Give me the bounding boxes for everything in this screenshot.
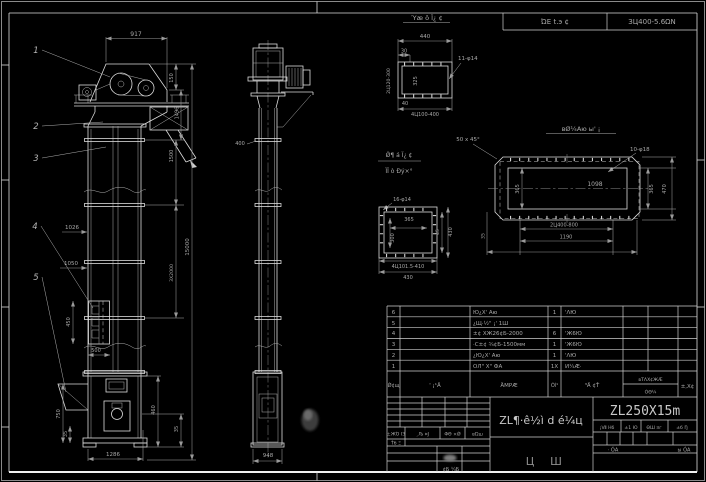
header-model: ЗЦ400-5.6ΩΝ [628,18,676,26]
info-label: ΘШ ¤г [646,425,662,431]
bom-header-name: ÄΜΡÆ [500,382,517,389]
bom-name: ·С±¢ ¾¢Б-1500мм [473,342,525,348]
bom-name: Ю¿Х' Аю [473,310,498,316]
dim-45: 45 [435,229,441,235]
bom-row: 5 ¿Щ·½" ¡' 1Ш [392,320,509,327]
idler-pulley [138,80,154,96]
dim-40: 40 [402,101,408,107]
bom-header-std: вΤΛХ¢ЖÆ [638,377,663,383]
balloon-4: 4 [32,222,37,232]
casing-front [84,126,146,438]
bom-row: 1 ОЛ" Х" ФА 1Х И¼Æ· [392,364,582,370]
support-bracket [283,95,311,127]
balloon-2: 2 [33,122,38,132]
bom-material: И¼Æ· [565,364,582,370]
side-elevation-view: 400 948 [235,40,313,464]
bom-row: 6 Ю¿Х' Аю 1 'ΛЮ [392,310,577,316]
bom-header-std2: ÓΘ¼ [645,389,657,396]
bom-name: ¿Ю¿Х' Аю [473,353,501,359]
bom-qty: 1 [553,342,557,348]
bom-qty: 1Х [551,364,558,370]
front-elevation-view: 1 2 3 4 5 917 150 1496 1500 3Х2000 [32,31,197,461]
bom-material: 'Ж6Ю [565,331,582,337]
holes-note-16: 16-φ14 [393,197,411,203]
bom-header-note: ±,Х¢ [681,384,695,390]
dim-2x400: 2Ц400-800 [550,223,578,229]
approval-label: ¸Љ ¤Ј [416,432,429,438]
flow-arrow [190,160,197,168]
cad-drawing-canvas: ΏΕ t.э ¢ ЗЦ400-5.6ΩΝ [0,0,706,482]
dim-430-bottom: 430 [403,275,413,281]
drawing-number-cell: ZL250X15m ¡Ⅶ Нб ±1 Ю ΘШ ¤г ±б Ŋ · ÓА ы Ó… [593,404,697,454]
signature-smudge [444,455,457,462]
drive-motor-side [286,66,303,88]
top-header-strip: ΏΕ t.э ¢ ЗЦ400-5.6ΩΝ [503,13,697,30]
chamfer-note: 50 x 45° [456,137,480,143]
holes-note-11: 11-φ14 [458,56,478,62]
approval-label: ±ЖΌ ΙЗ [387,431,405,438]
detail-base-plate: Ǿ¶ á Ï¿ ¢ ÏÏ ò Ðý×° 16-φ14 365 300 45 43… [378,152,454,281]
date-label: ¢Б ¼Б [443,467,460,473]
bom-header-material: ³Ä ¢Ť [585,381,600,389]
bom-header-no: Ǿ¢щ [388,382,400,389]
bom-qty: 1 [553,310,557,316]
dim-325: 325 [413,76,419,86]
title-block: ±ЖΌ ΙЗ ¸Љ ¤Ј ΦΘ ×Ǿ вΏш Ťб Ξ ¢Б ¼Б ZL¶·ê½… [387,397,697,473]
bom-row: 2 ¿Ю¿Х' Аю 1 'ΛЮ [392,353,577,359]
balloon-5: 5 [33,273,38,283]
revision-grid: ±ЖΌ ΙЗ ¸Љ ¤Ј ΦΘ ×Ǿ вΏш Ťб Ξ ¢Б ¼Б [387,397,490,473]
bom-row: 3 ·С±¢ ¾¢Б-1500мм 1 'Ж6Ю [392,342,582,348]
dim-470: 470 [662,184,668,194]
bom-header-row: Ǿ¢щ ' ¡¹Ä ÄΜΡÆ Óî¹ ³Ä ¢Ť вΤΛХ¢ЖÆ ÓΘ¼ ±,Х… [388,377,695,396]
dim-boot-right: 460 [151,405,157,415]
bom-row: 4 ±¢ ХЖ26¢Б-2000 6 'Ж6Ю [392,331,582,337]
dim-365-right: 365 [649,184,655,194]
bom-no: 3 [392,342,396,348]
header-classification: ΏΕ t.э ¢ [540,18,569,26]
dim-bucket-width: 500 [91,348,101,354]
detail-base-title2: ÏÏ ò Ðý×° [385,168,412,175]
dim-boot-offset: 35 [63,431,69,437]
sheet-number: ы ÓА [678,447,691,454]
bom-table: 6 Ю¿Х' Аю 1 'ΛЮ 5 ¿Щ·½" ¡' 1Ш 4 ±¢ ХЖ26¢… [387,306,697,472]
dim-35: 35 [481,233,487,239]
dim-head-h2: 1496 [175,107,181,120]
inspection-door [104,401,130,431]
bom-name: ОЛ" Х" ФА [473,364,503,370]
approval-label: вΏш [472,431,483,438]
balloon-1: 1 [33,46,38,56]
balloon-3: 3 [33,154,38,164]
bom-header-qty: Óî¹ [551,382,558,389]
paper-smudge [302,409,319,431]
checker-label: Ťб Ξ [390,439,401,447]
bucket-chain-box [89,301,110,344]
drive-pulley [110,73,132,95]
bom-qty: 1 [553,353,557,359]
info-label: ¡Ⅶ Нб [600,425,615,431]
bucket [92,330,99,338]
stamp-character-1: Ц [526,455,535,468]
bom-no: 1 [392,364,396,370]
bucket [92,306,99,314]
bom-material: 'Ж6Ю [565,342,582,348]
info-label: ±1 Ю [624,425,637,431]
dim-boot-height: 750 [56,409,62,419]
dim-300: 300 [390,233,396,243]
dim-boot-right2: 35 [174,426,180,432]
dim-4x101: 4Ц101.5-410 [392,264,425,270]
dim-left-1050: 1050 [64,261,78,267]
boot-section-front [58,372,147,447]
engineering-drawing: ΏΕ t.э ¢ ЗЦ400-5.6ΩΝ [0,0,706,482]
dim-head-width: 917 [130,31,142,38]
detail-top-title: Ύæ ô Ï¿ ¢ [410,13,442,22]
dim-head-h1: 150 [169,73,175,83]
dim-4x100: 4Ц100-400 [411,112,439,118]
dim-total-height: 15000 [185,238,191,256]
boot-section-side [251,372,284,447]
dim-430-right: 430 [448,227,454,237]
detail-flange-title: вØ¼Аю ы' ¡ [562,125,601,133]
dim-flange-width: 400 [235,141,245,147]
drawing-title-cell: ZL¶·ê½ì d é¼ц Ц Ш [490,414,593,468]
elevator-head-side [248,44,313,127]
dim-365-inner: 365 [515,184,521,194]
bom-header-code: ' ¡¹Ä [429,382,441,389]
bom-name: ¿Щ·½" ¡' 1Ш [473,320,508,327]
sheet-count: · ÓА [608,447,619,454]
bom-qty: 6 [553,331,557,337]
bom-no: 4 [392,331,396,337]
bom-no: 2 [392,353,396,359]
item-balloons: 1 2 3 4 5 [32,46,110,392]
bom-no: 5 [392,321,396,327]
break-line-upper [84,187,146,192]
casing-side [255,108,282,374]
bom-material: 'ΛЮ [565,310,576,316]
dim-30: 30 [401,49,407,55]
dim-bucket-height: 450 [66,317,72,327]
detail-top-channel: Ύæ ô Ï¿ ¢ 440 30 325 11-φ14 2Ц120-300 40… [386,13,478,118]
stamp-character-2: Ш [550,455,562,468]
holes-note-10: 10-φ18 [630,147,650,153]
bom-name: ±¢ ХЖ26¢Б-2000 [473,331,523,337]
dim-440: 440 [420,34,431,40]
drive-motor-front [79,85,96,100]
approval-label: ΦΘ ×Ǿ [444,431,461,438]
dim-mid-sections: 3Х2000 [169,264,175,282]
bom-no: 6 [392,310,396,316]
left-channel-note: 2Ц120-300 [386,68,392,94]
dim-left-1026: 1026 [65,225,79,231]
detail-base-title1: Ǿ¶ á Ï¿ ¢ [386,152,413,159]
dim-boot-depth: 948 [263,453,274,459]
drawing-number: ZL250X15m [610,404,681,419]
info-label: ±б Ŋ [676,425,688,431]
detail-flange-plate: вØ¼Аю ы' ¡ 50 x 45° 10-φ18 1098 365 365 … [456,125,676,255]
dim-365: 365 [404,217,414,223]
drawing-title: ZL¶·ê½ì d é¼ц [499,414,583,427]
dim-1098: 1098 [587,181,602,188]
dim-1190: 1190 [560,235,573,241]
dim-base-width: 1286 [106,452,120,458]
dim-section-h: 1500 [169,150,175,163]
bom-material: 'ΛЮ [565,353,576,359]
